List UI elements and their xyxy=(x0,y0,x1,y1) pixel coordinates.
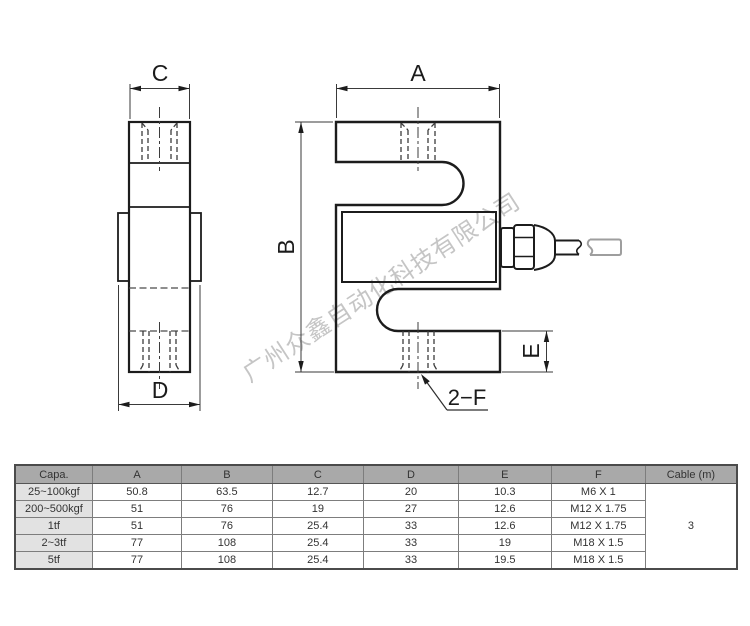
cable-break xyxy=(577,241,582,255)
dim-B xyxy=(295,122,334,372)
front-view-s-body xyxy=(336,122,500,372)
value-cell: 10.3 xyxy=(458,484,551,501)
col-header-a: A xyxy=(92,465,182,484)
value-cell: M6 X 1 xyxy=(551,484,645,501)
value-cell: M18 X 1.5 xyxy=(551,552,645,570)
value-cell: 108 xyxy=(182,535,272,552)
value-cell: 12.6 xyxy=(458,518,551,535)
dimension-label-c: C xyxy=(152,60,169,86)
dimension-label-e: E xyxy=(518,343,544,358)
value-cell: 33 xyxy=(364,535,459,552)
capacity-cell: 25~100kgf xyxy=(15,484,92,501)
value-cell: 33 xyxy=(364,518,459,535)
table-row: 25~100kgf 50.8 63.5 12.7 20 10.3 M6 X 1 … xyxy=(15,484,737,501)
value-cell: 25.4 xyxy=(272,518,364,535)
value-cell: 51 xyxy=(92,518,182,535)
col-header-d: D xyxy=(364,465,459,484)
table-row: 2~3tf 77 108 25.4 33 19 M18 X 1.5 xyxy=(15,535,737,552)
col-header-f: F xyxy=(551,465,645,484)
dimension-label-b: B xyxy=(273,239,299,254)
value-cell: 50.8 xyxy=(92,484,182,501)
value-cell: M12 X 1.75 xyxy=(551,501,645,518)
value-cell: 27 xyxy=(364,501,459,518)
side-view-body xyxy=(129,122,190,372)
dimension-label-a: A xyxy=(410,60,426,86)
spec-table: Capa. A B C D E F Cable (m) 25~100kgf 50… xyxy=(14,464,738,570)
side-view-right-plate xyxy=(190,213,201,281)
col-header-e: E xyxy=(458,465,551,484)
table-header-row: Capa. A B C D E F Cable (m) xyxy=(15,465,737,484)
thread-callout-label: 2−F xyxy=(448,385,487,410)
value-cell: 51 xyxy=(92,501,182,518)
value-cell: 20 xyxy=(364,484,459,501)
table-row: 1tf 51 76 25.4 33 12.6 M12 X 1.75 xyxy=(15,518,737,535)
cable-tail xyxy=(588,240,621,256)
col-header-cable: Cable (m) xyxy=(645,465,737,484)
capacity-cell: 2~3tf xyxy=(15,535,92,552)
capacity-cell: 200~500kgf xyxy=(15,501,92,518)
value-cell: 77 xyxy=(92,552,182,570)
capacity-cell: 5tf xyxy=(15,552,92,570)
col-header-b: B xyxy=(182,465,272,484)
table-row: 5tf 77 108 25.4 33 19.5 M18 X 1.5 xyxy=(15,552,737,570)
value-cell: 77 xyxy=(92,535,182,552)
value-cell: 108 xyxy=(182,552,272,570)
load-cell-drawing-page: 广州众鑫自动化科技有限公司 xyxy=(0,0,750,626)
value-cell: 76 xyxy=(182,501,272,518)
col-header-c: C xyxy=(272,465,364,484)
value-cell: 76 xyxy=(182,518,272,535)
side-view xyxy=(118,107,201,389)
value-cell: 33 xyxy=(364,552,459,570)
value-cell: 25.4 xyxy=(272,552,364,570)
front-view-label-plate xyxy=(342,212,496,282)
dimension-label-d: D xyxy=(152,377,169,403)
value-cell: M12 X 1.75 xyxy=(551,518,645,535)
col-header-capa: Capa. xyxy=(15,465,92,484)
value-cell: 19.5 xyxy=(458,552,551,570)
value-cell: 63.5 xyxy=(182,484,272,501)
capacity-cell: 1tf xyxy=(15,518,92,535)
table-row: 200~500kgf 51 76 19 27 12.6 M12 X 1.75 xyxy=(15,501,737,518)
side-view-left-plate xyxy=(118,213,129,281)
value-cell: M18 X 1.5 xyxy=(551,535,645,552)
value-cell: 12.6 xyxy=(458,501,551,518)
value-cell: 12.7 xyxy=(272,484,364,501)
technical-drawing: C D xyxy=(0,0,750,460)
value-cell: 19 xyxy=(458,535,551,552)
cable-length-cell: 3 xyxy=(645,484,737,570)
value-cell: 19 xyxy=(272,501,364,518)
value-cell: 25.4 xyxy=(272,535,364,552)
cable-gland xyxy=(501,225,581,270)
front-view xyxy=(336,107,500,389)
